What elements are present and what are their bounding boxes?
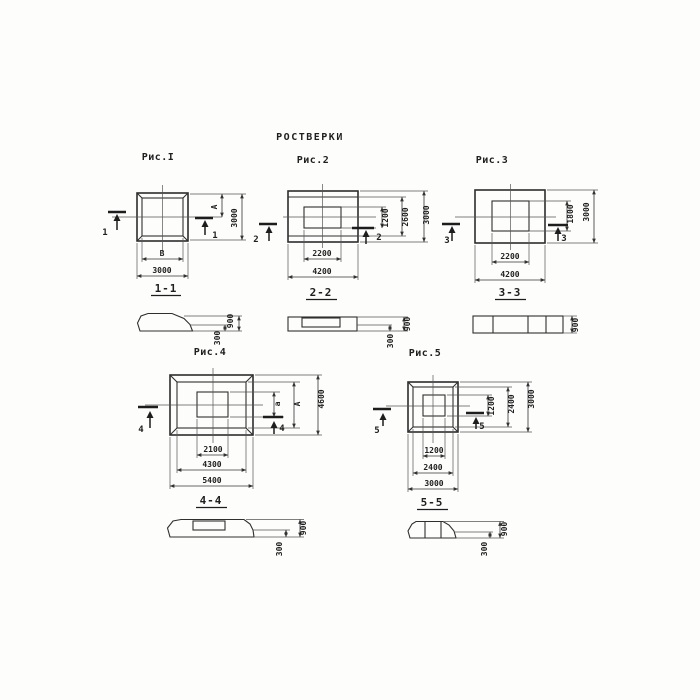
section5-dim-300: 300 [480, 542, 489, 557]
section-4-title: 4-4 [200, 494, 223, 507]
section2-dim-300: 300 [386, 334, 395, 349]
figure-5-section-view: 900 300 [408, 522, 509, 557]
fig2-dim-2600: 2600 [401, 207, 410, 226]
fig2-dim-2200: 2200 [312, 249, 331, 258]
fig5-dim-right-2400: 2400 [507, 394, 516, 413]
fig3-dim-right-3000: 3000 [582, 202, 591, 221]
section4-dim-300: 300 [275, 542, 284, 557]
section1-dim-300: 300 [213, 331, 222, 346]
fig2-dim-4200: 4200 [312, 267, 331, 276]
section4-dim-900: 900 [299, 521, 308, 536]
fig3-dim-1800: 1800 [566, 204, 575, 223]
figure-5-plan: Рис.5 1200 2400 3000 1200 2400 3000 5 [373, 348, 536, 510]
fig2-cut-left: 2 [253, 235, 258, 245]
fig5-cut-right: 5 [479, 422, 484, 432]
fig3-cut-left: 3 [444, 236, 449, 246]
fig2-dim-right-3000: 3000 [422, 205, 431, 224]
section-2-title: 2-2 [310, 286, 333, 299]
fig2-cut-right: 2 [376, 233, 381, 243]
figure-4-label: Рис.4 [194, 347, 227, 358]
fig5-cut-left: 5 [374, 426, 379, 436]
figure-3-section-view: 900 [473, 316, 580, 333]
fig3-dim-4200: 4200 [500, 270, 519, 279]
fig5-dim-bottom-1200: 1200 [424, 446, 443, 455]
fig4-dim-4300: 4300 [202, 460, 221, 469]
figure-2-plan: Рис.2 1200 2600 3000 2200 4200 2 2 2-2 [253, 155, 431, 300]
drawing-title: РОСТВЕРКИ [276, 132, 344, 143]
fig4-dim-2100: 2100 [203, 445, 222, 454]
scanned-grillage-drawing: РОСТВЕРКИ Рис.I А 3000 В 3000 1 1 1-1 [0, 0, 700, 700]
fig4-cut-right: 4 [279, 424, 285, 434]
figure-2-label: Рис.2 [297, 155, 330, 166]
fig4-dim-a-small: а [273, 401, 282, 406]
fig5-dim-right-3000: 3000 [527, 389, 536, 408]
figure-1-label: Рис.I [142, 152, 175, 163]
fig1-dim-A: А [210, 204, 219, 209]
figure-1-section-view: 900 300 [138, 314, 243, 346]
figure-4-section-view: 900 300 [168, 520, 309, 557]
figure-1-plan: Рис.I А 3000 В 3000 1 1 1-1 [102, 152, 246, 296]
fig3-cut-right: 3 [561, 234, 566, 244]
fig1-cut-left: 1 [102, 228, 107, 238]
fig1-dim-B: В [160, 249, 165, 258]
figure-2-section-view: 900 300 [288, 317, 412, 349]
section-3-title: 3-3 [499, 286, 522, 299]
fig4-cut-left: 4 [138, 425, 144, 435]
fig4-dim-A-big: А [293, 401, 302, 406]
figure-3-label: Рис.3 [476, 155, 509, 166]
fig1-cut-right: 1 [212, 231, 217, 241]
drawing-canvas: РОСТВЕРКИ Рис.I А 3000 В 3000 1 1 1-1 [0, 0, 700, 700]
section2-dim-900: 900 [403, 317, 412, 332]
section-1-title: 1-1 [155, 282, 178, 295]
figure-4-plan: Рис.4 а А 4600 2100 4300 5400 4 [138, 347, 326, 508]
section5-dim-900: 900 [500, 522, 509, 537]
section3-dim-900: 900 [571, 318, 580, 333]
fig5-dim-bottom-2400: 2400 [423, 463, 442, 472]
section-5-title: 5-5 [421, 496, 444, 509]
section1-dim-900: 900 [226, 314, 235, 329]
fig3-dim-2200: 2200 [500, 252, 519, 261]
figure-3-plan: Рис.3 1800 3000 2200 4200 3 3 3-3 [442, 155, 598, 300]
fig4-dim-4600: 4600 [317, 389, 326, 408]
fig1-dim-right-3000: 3000 [230, 208, 239, 227]
fig5-dim-bottom-3000: 3000 [424, 479, 443, 488]
fig2-dim-1200: 1200 [381, 208, 390, 227]
fig5-dim-right-1200: 1200 [487, 396, 496, 415]
figure-5-label: Рис.5 [409, 348, 442, 359]
fig1-dim-bottom-3000: 3000 [152, 266, 171, 275]
fig4-dim-5400: 5400 [202, 476, 221, 485]
